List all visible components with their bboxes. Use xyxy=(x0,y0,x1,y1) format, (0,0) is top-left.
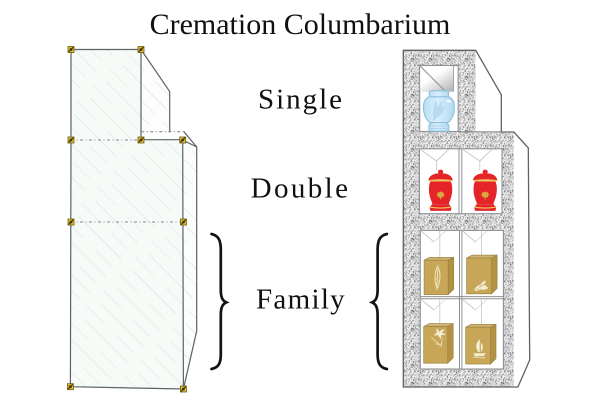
svg-text:Family: Family xyxy=(256,284,346,316)
svg-text:Double: Double xyxy=(251,172,351,204)
svg-text:Single: Single xyxy=(258,84,344,116)
svg-text:Cremation Columbarium: Cremation Columbarium xyxy=(150,8,451,41)
